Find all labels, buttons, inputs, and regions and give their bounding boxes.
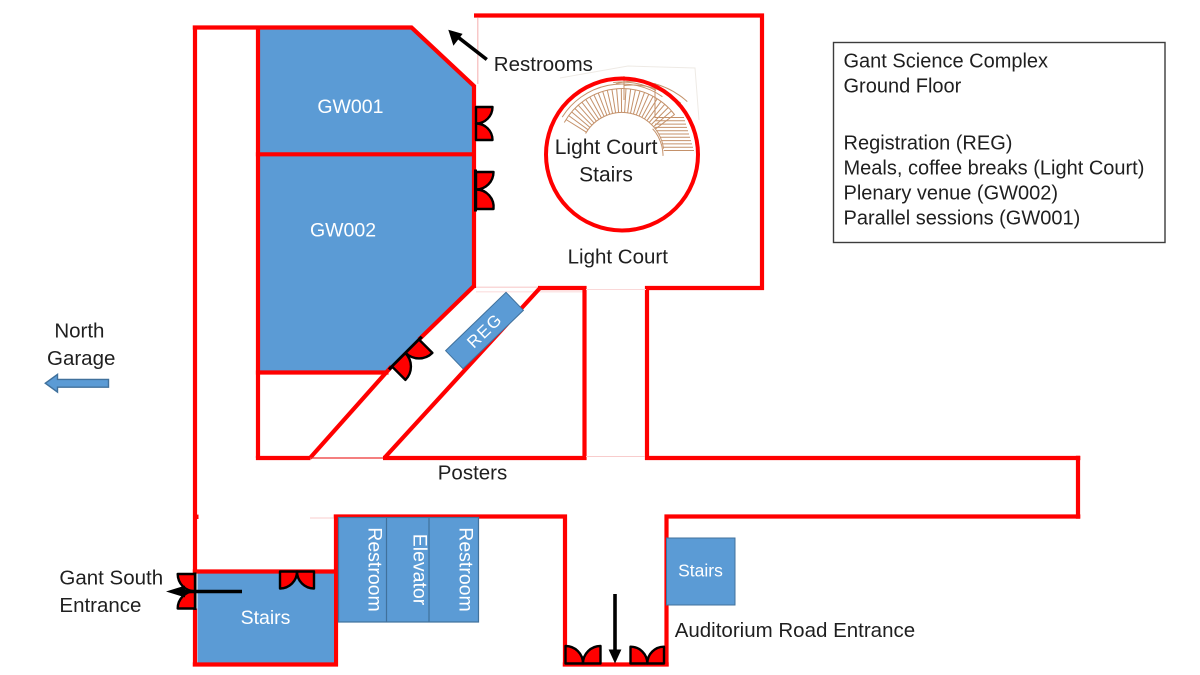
svg-text:GW001: GW001 [317, 96, 383, 118]
svg-text:Light Court: Light Court [555, 136, 658, 159]
svg-text:Parallel sessions (GW001): Parallel sessions (GW001) [844, 208, 1081, 230]
svg-text:Light Court: Light Court [568, 246, 669, 269]
svg-text:Registration (REG): Registration (REG) [844, 133, 1013, 155]
svg-text:Stairs: Stairs [579, 164, 633, 187]
svg-text:Restroom: Restroom [364, 527, 386, 612]
svg-text:Stairs: Stairs [678, 561, 723, 581]
svg-text:Gant South: Gant South [59, 567, 163, 590]
svg-text:Garage: Garage [47, 347, 115, 370]
svg-text:Ground Floor: Ground Floor [844, 76, 962, 98]
svg-text:Posters: Posters [438, 462, 508, 485]
svg-text:Auditorium Road Entrance: Auditorium Road Entrance [675, 619, 915, 642]
svg-text:Meals, coffee breaks (Light Co: Meals, coffee breaks (Light Court) [844, 158, 1145, 180]
svg-text:Restrooms: Restrooms [494, 53, 593, 76]
svg-text:Restroom: Restroom [455, 527, 477, 612]
svg-text:GW002: GW002 [310, 220, 376, 242]
svg-text:Plenary venue (GW002): Plenary venue (GW002) [844, 183, 1059, 205]
svg-text:Stairs: Stairs [241, 607, 291, 629]
svg-text:Entrance: Entrance [59, 594, 141, 617]
svg-text:North: North [54, 320, 104, 343]
svg-text:Gant Science Complex: Gant Science Complex [844, 51, 1049, 73]
svg-text:Elevator: Elevator [409, 534, 431, 606]
